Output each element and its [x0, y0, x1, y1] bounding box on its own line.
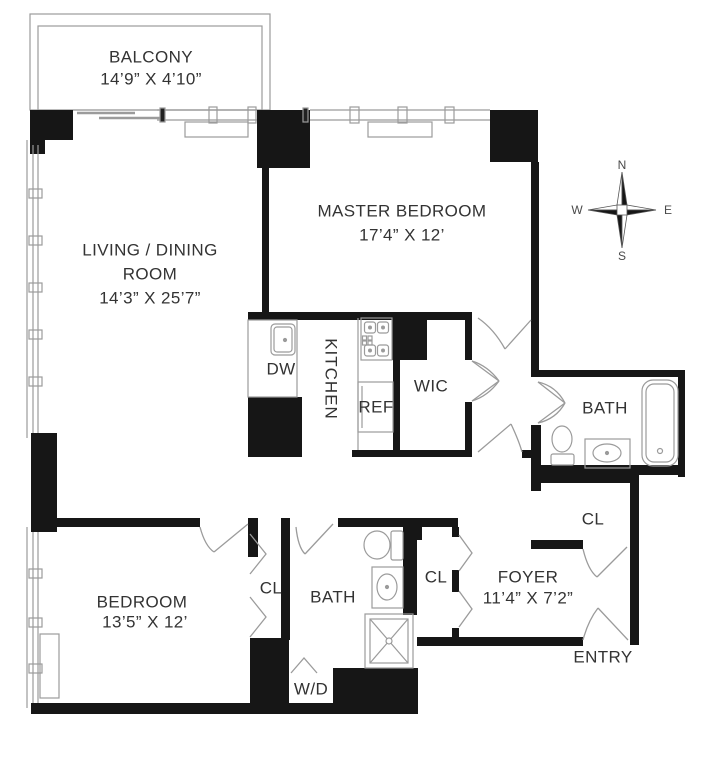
washer-dryer-label: W/D: [294, 681, 328, 698]
living-room-dims: 14’3” X 25’7”: [99, 290, 201, 307]
balcony-label: BALCONY: [109, 49, 193, 66]
kitchen-sink: [271, 324, 295, 355]
balcony-dims: 14’9” X 4’10”: [100, 71, 202, 88]
sink-vanity: [585, 439, 630, 468]
hallway-door: [478, 424, 522, 452]
compass-rose: [588, 172, 656, 248]
sink-vanity: [372, 567, 403, 608]
bath-door: [296, 524, 333, 554]
convector-unit: [40, 634, 59, 698]
master-bedroom-dims: 17’4” X 12’: [359, 227, 445, 244]
floor-plan: BALCONY 14’9” X 4’10” LIVING / DINING RO…: [0, 0, 709, 762]
wic-door: [472, 361, 499, 401]
bathtub: [642, 380, 678, 466]
master-bedroom-label: MASTER BEDROOM: [317, 203, 486, 220]
hall-closet-bifold-doors: [459, 535, 472, 627]
living-room-label: LIVING / DINING: [82, 242, 217, 259]
foyer-dims: 11’4” X 7’2”: [483, 590, 573, 607]
window-end-post: [160, 108, 165, 122]
washer-dryer-bifold-door: [291, 658, 317, 673]
foyer-label: FOYER: [498, 569, 559, 586]
bath-label: BATH: [310, 589, 356, 606]
kitchen-counter: [248, 320, 297, 397]
living-room-label-2: ROOM: [123, 266, 177, 283]
shower: [365, 614, 413, 668]
master-bath-door: [538, 382, 565, 423]
entry-door: [583, 608, 628, 640]
bedroom-dims: 13’5” X 12’: [102, 614, 188, 631]
kitchen-label: KITCHEN: [323, 338, 340, 420]
foyer-closet-door: [583, 547, 627, 577]
compass-south-label: S: [618, 250, 626, 262]
entry-label: ENTRY: [573, 649, 632, 666]
toilet: [551, 426, 574, 465]
wic-label: WIC: [414, 378, 448, 395]
window-end-post: [303, 108, 308, 122]
toilet: [364, 531, 403, 560]
compass-west-label: W: [571, 204, 582, 216]
hall-closet-label: CL: [425, 569, 448, 586]
compass-north-label: N: [618, 159, 627, 171]
compass-east-label: E: [664, 204, 672, 216]
bedroom-door: [200, 524, 248, 552]
bedroom-closet-label: CL: [260, 580, 283, 597]
dishwasher-label: DW: [266, 361, 295, 378]
refrigerator-label: REF: [358, 399, 393, 416]
master-bath-label: BATH: [582, 400, 628, 417]
master-bath-fixtures: [551, 380, 678, 468]
bedroom-label: BEDROOM: [97, 594, 188, 611]
stove: [361, 318, 392, 360]
foyer-closet-label: CL: [582, 511, 605, 528]
master-bedroom-door: [478, 318, 531, 349]
